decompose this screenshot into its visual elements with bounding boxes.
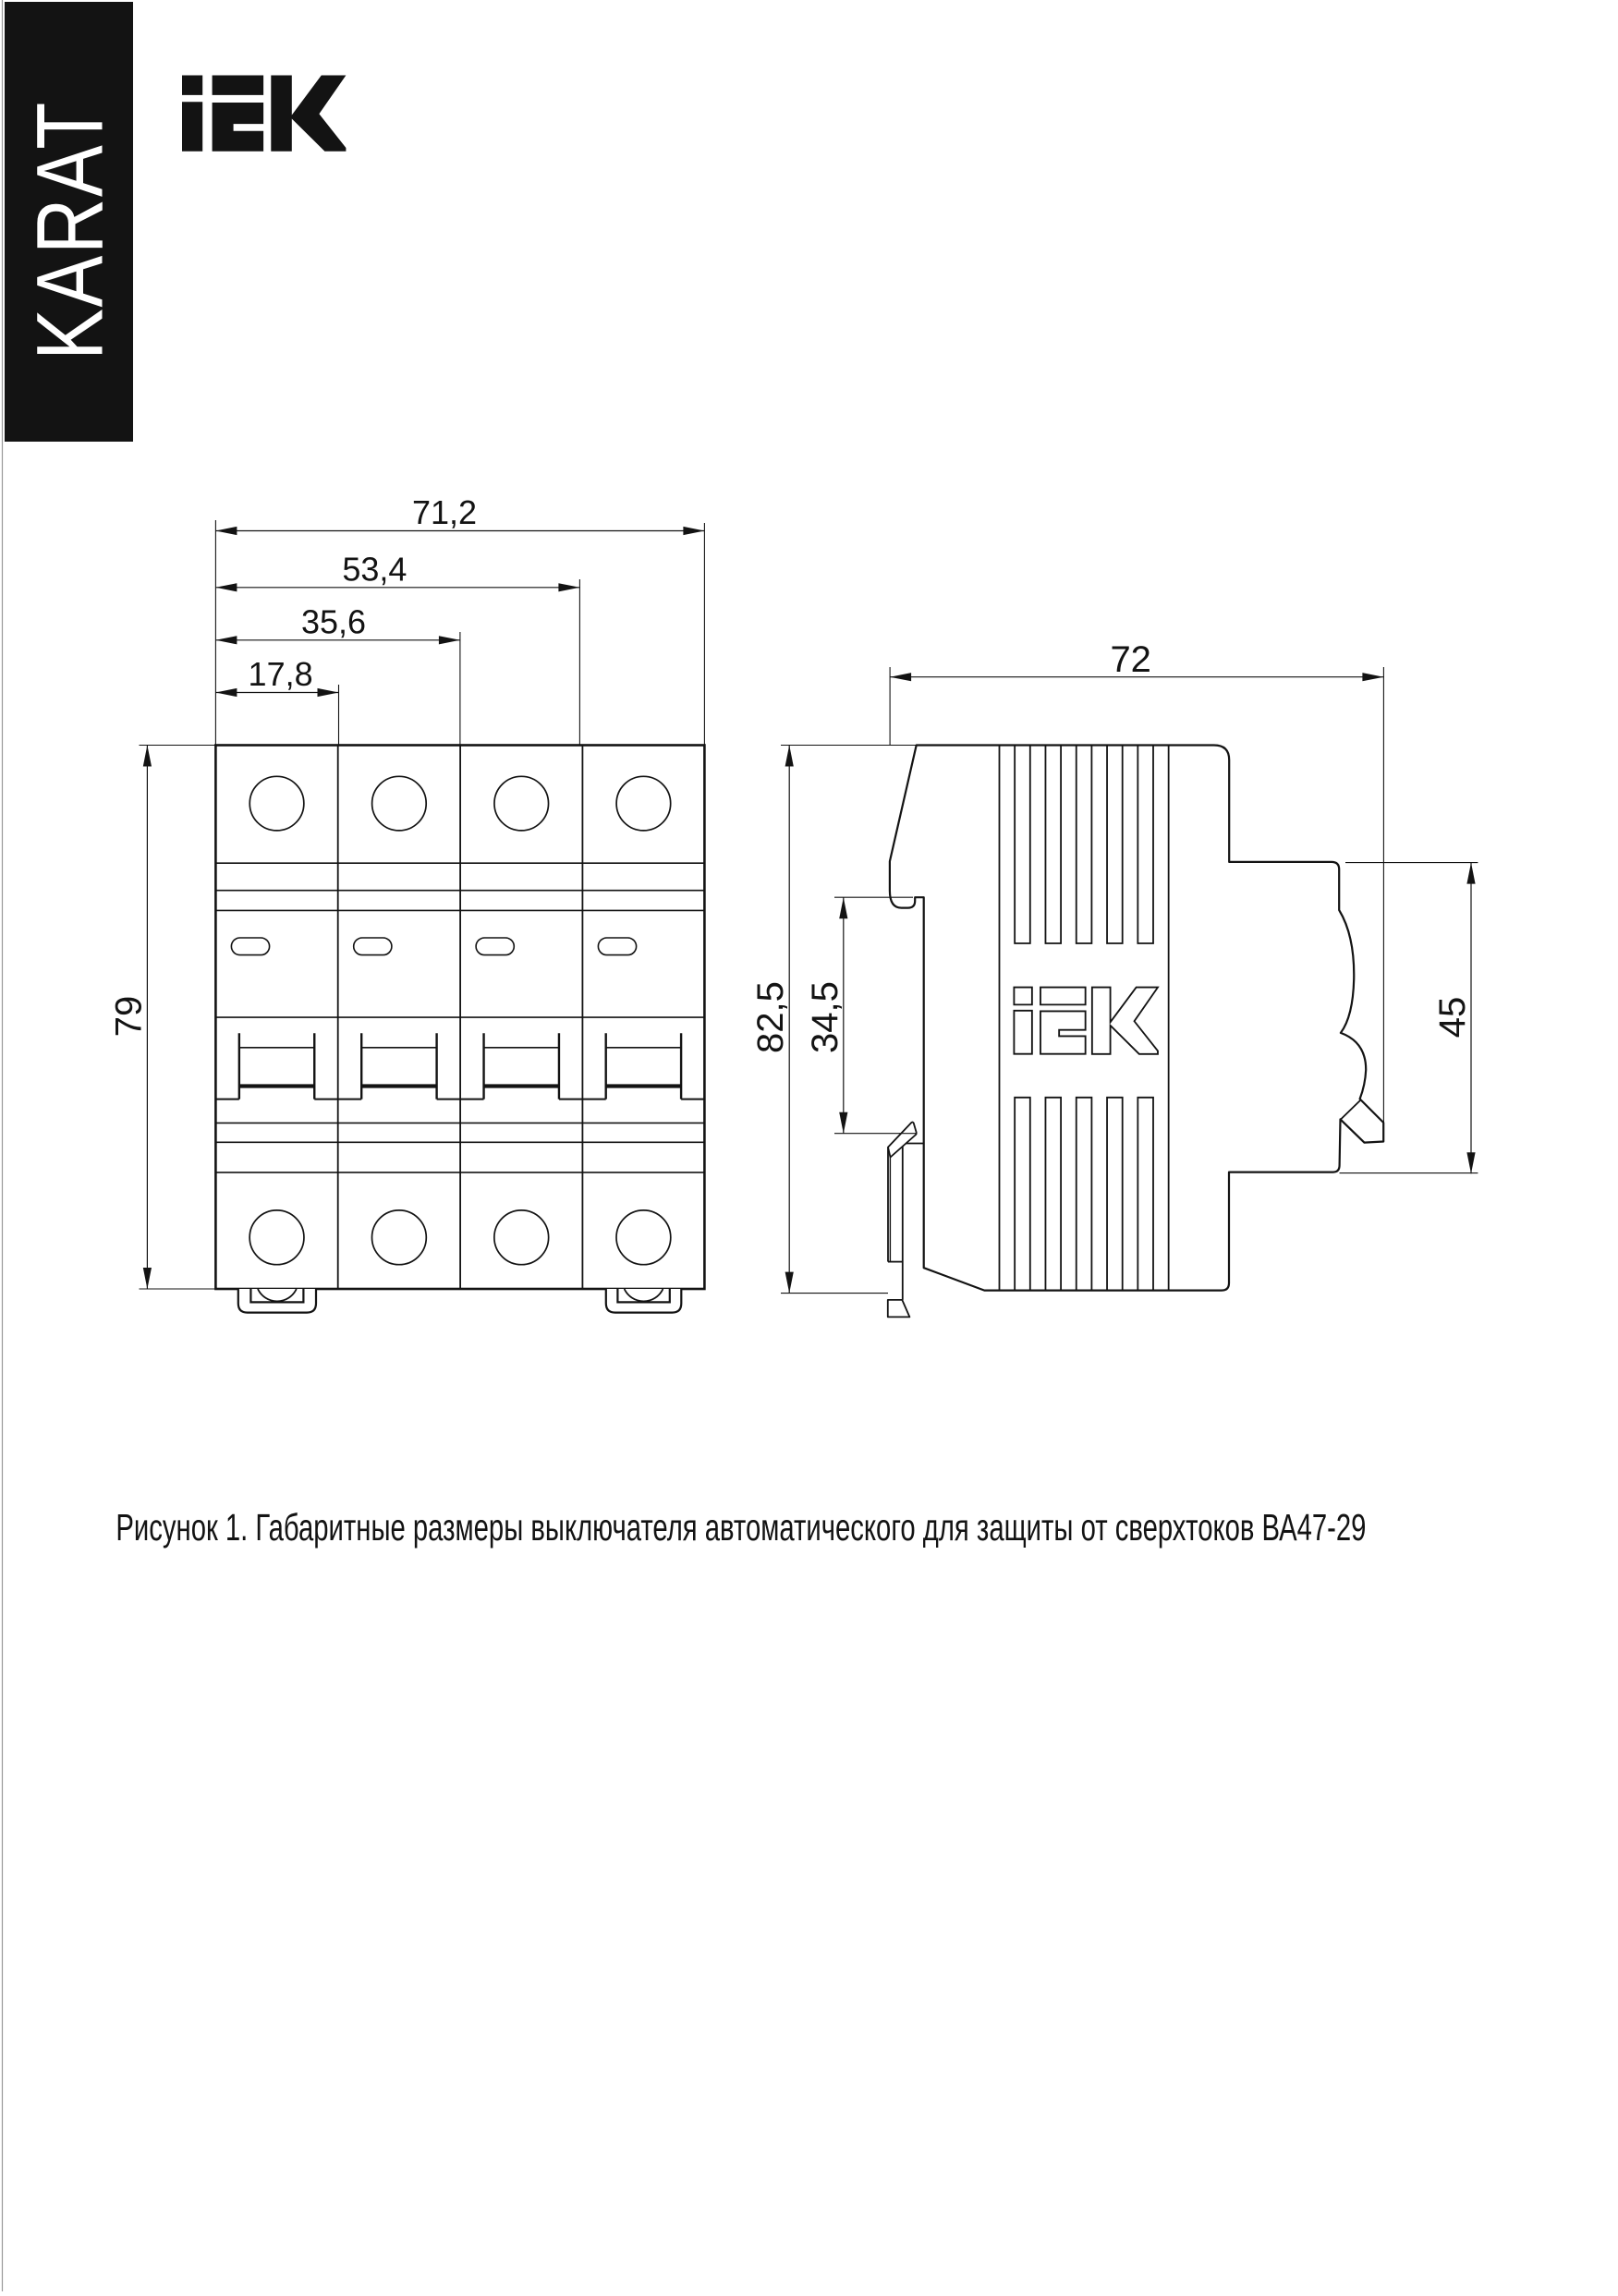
svg-text:17,8: 17,8	[249, 655, 313, 693]
svg-text:71,2: 71,2	[412, 493, 477, 531]
svg-text:82,5: 82,5	[750, 981, 791, 1053]
svg-text:53,4: 53,4	[342, 550, 407, 588]
svg-text:79: 79	[109, 996, 150, 1038]
svg-text:KARAT: KARAT	[18, 101, 123, 360]
svg-text:35,6: 35,6	[301, 602, 366, 640]
svg-text:34,5: 34,5	[805, 981, 845, 1053]
svg-text:72: 72	[1110, 639, 1151, 680]
svg-text:Рисунок 1. Габаритные размеры: Рисунок 1. Габаритные размеры выключател…	[116, 1506, 1366, 1549]
svg-text:45: 45	[1432, 997, 1473, 1039]
